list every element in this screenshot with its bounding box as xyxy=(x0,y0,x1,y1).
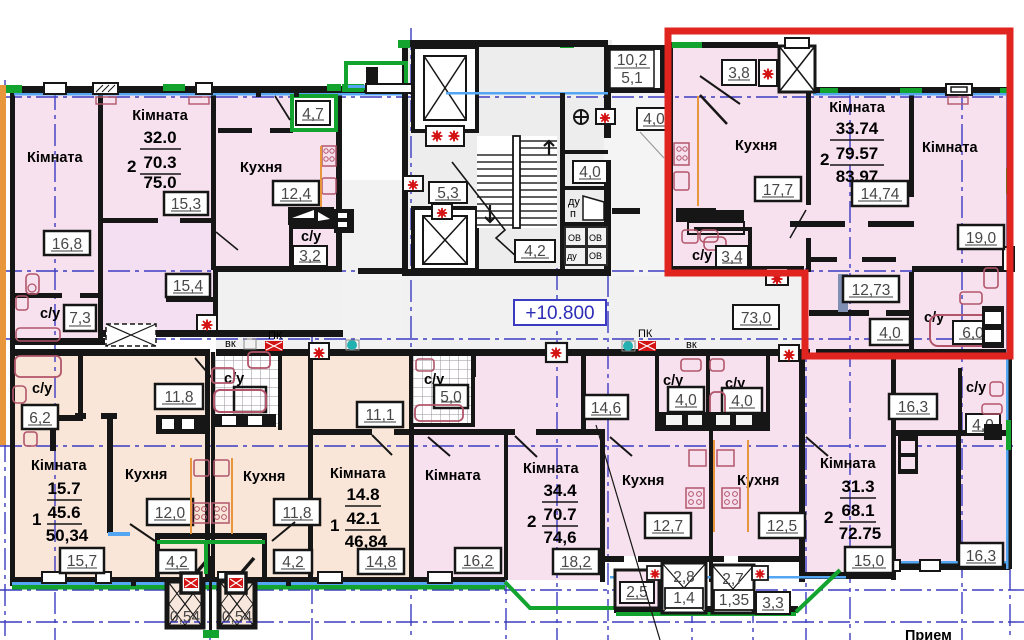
svg-text:15,4: 15,4 xyxy=(173,278,204,295)
svg-text:Кухня: Кухня xyxy=(243,469,285,485)
svg-text:с/у: с/у xyxy=(301,229,321,245)
svg-text:14.8: 14.8 xyxy=(346,485,379,504)
svg-text:15,0: 15,0 xyxy=(854,553,885,570)
svg-text:Кімната: Кімната xyxy=(27,150,84,166)
svg-text:4,0: 4,0 xyxy=(879,325,901,342)
svg-text:11,8: 11,8 xyxy=(164,389,193,406)
svg-text:4,0: 4,0 xyxy=(579,164,601,181)
svg-text:ПК: ПК xyxy=(638,328,653,340)
svg-text:Кімната: Кімната xyxy=(922,140,979,156)
svg-text:Кухня: Кухня xyxy=(622,473,664,489)
svg-text:Кімната: Кімната xyxy=(425,468,482,484)
svg-text:11,8: 11,8 xyxy=(282,505,311,522)
svg-text:15.7: 15.7 xyxy=(47,479,80,498)
svg-text:45.6: 45.6 xyxy=(47,503,80,522)
svg-text:19,0: 19,0 xyxy=(966,230,997,247)
svg-text:68.1: 68.1 xyxy=(841,501,874,520)
svg-text:Кімната: Кімната xyxy=(31,458,88,474)
svg-text:ОВ: ОВ xyxy=(568,233,581,243)
svg-text:31.3: 31.3 xyxy=(841,477,874,496)
svg-text:1: 1 xyxy=(32,510,41,529)
svg-text:1: 1 xyxy=(330,516,339,535)
svg-text:Кухня: Кухня xyxy=(240,160,282,176)
svg-text:72.75: 72.75 xyxy=(839,524,882,543)
svg-text:2,7: 2,7 xyxy=(722,571,744,588)
svg-text:5,1: 5,1 xyxy=(621,70,643,87)
svg-text:4,0: 4,0 xyxy=(731,393,753,410)
svg-text:70.7: 70.7 xyxy=(543,505,576,524)
svg-text:75.0: 75.0 xyxy=(143,173,176,192)
svg-text:6,2: 6,2 xyxy=(29,410,51,427)
svg-text:Кімната: Кімната xyxy=(132,108,189,124)
svg-text:2: 2 xyxy=(824,508,833,527)
svg-text:ОВ: ОВ xyxy=(589,233,602,243)
svg-text:Кімната: Кімната xyxy=(330,466,387,482)
svg-text:с/у: с/у xyxy=(40,306,60,322)
svg-text:ду: ду xyxy=(568,196,580,208)
svg-text:с/у: с/у xyxy=(692,248,712,264)
svg-text:15,7: 15,7 xyxy=(67,553,97,570)
svg-text:34.4: 34.4 xyxy=(543,481,577,500)
svg-text:12,4: 12,4 xyxy=(281,186,312,203)
svg-text:16,2: 16,2 xyxy=(463,553,493,570)
svg-text:10,2: 10,2 xyxy=(617,52,647,69)
svg-text:70.3: 70.3 xyxy=(143,153,176,172)
svg-text:ПК: ПК xyxy=(268,330,283,342)
svg-text:5,3: 5,3 xyxy=(437,185,459,202)
svg-text:с/у: с/у xyxy=(966,380,986,396)
svg-text:4,2: 4,2 xyxy=(282,554,304,571)
svg-text:42.1: 42.1 xyxy=(346,509,379,528)
svg-text:4,2: 4,2 xyxy=(524,243,546,260)
svg-text:5,0: 5,0 xyxy=(440,389,462,406)
svg-text:1,35: 1,35 xyxy=(719,592,749,609)
svg-text:0,54: 0,54 xyxy=(170,609,201,626)
svg-text:14,6: 14,6 xyxy=(591,400,621,417)
svg-text:79.57: 79.57 xyxy=(836,144,879,163)
svg-text:Кухня: Кухня xyxy=(737,473,779,489)
svg-text:3,3: 3,3 xyxy=(762,595,784,612)
svg-text:2: 2 xyxy=(127,157,136,176)
svg-text:2: 2 xyxy=(527,512,536,531)
svg-text:2,8: 2,8 xyxy=(673,569,695,586)
svg-text:ду: ду xyxy=(567,251,577,261)
svg-text:17,7: 17,7 xyxy=(763,182,793,199)
svg-text:4,2: 4,2 xyxy=(166,554,188,571)
svg-text:7,3: 7,3 xyxy=(69,310,91,327)
svg-text:15,3: 15,3 xyxy=(171,196,201,213)
svg-text:11,1: 11,1 xyxy=(365,407,394,424)
svg-text:73,0: 73,0 xyxy=(741,310,772,327)
svg-text:с/у: с/у xyxy=(32,381,52,397)
svg-text:Кухня: Кухня xyxy=(125,467,167,483)
svg-text:п: п xyxy=(570,208,576,220)
svg-text:3,8: 3,8 xyxy=(728,65,750,82)
svg-text:14,74: 14,74 xyxy=(861,186,900,203)
svg-text:2: 2 xyxy=(820,150,829,169)
svg-text:Кімната: Кімната xyxy=(820,456,877,472)
svg-text:14,8: 14,8 xyxy=(366,554,396,571)
svg-text:16,8: 16,8 xyxy=(52,236,82,253)
svg-text:18,2: 18,2 xyxy=(561,554,591,571)
svg-text:с/у: с/у xyxy=(924,310,944,326)
svg-text:12,5: 12,5 xyxy=(767,518,797,535)
svg-text:50,34: 50,34 xyxy=(46,526,89,545)
svg-text:16,3: 16,3 xyxy=(898,399,928,416)
svg-text:12,7: 12,7 xyxy=(653,518,683,535)
svg-text:Прием: Прием xyxy=(905,628,952,640)
svg-text:1,4: 1,4 xyxy=(673,590,695,607)
svg-text:32.0: 32.0 xyxy=(143,128,176,147)
svg-text:вк: вк xyxy=(686,339,697,351)
svg-text:4,0: 4,0 xyxy=(675,392,697,409)
svg-text:33.74: 33.74 xyxy=(836,119,879,138)
svg-text:Кухня: Кухня xyxy=(735,138,777,154)
svg-text:16,3: 16,3 xyxy=(966,548,996,565)
svg-text:вк: вк xyxy=(225,338,236,350)
svg-text:+10.800: +10.800 xyxy=(525,303,594,324)
svg-text:0,54: 0,54 xyxy=(222,609,253,626)
svg-text:Кімната: Кімната xyxy=(523,461,580,477)
svg-text:12,73: 12,73 xyxy=(852,282,891,299)
svg-text:4,0: 4,0 xyxy=(643,111,665,128)
svg-text:74,6: 74,6 xyxy=(543,528,576,547)
svg-text:ОВ: ОВ xyxy=(589,251,602,261)
svg-text:12,0: 12,0 xyxy=(155,505,186,522)
svg-text:Кімната: Кімната xyxy=(829,100,886,116)
